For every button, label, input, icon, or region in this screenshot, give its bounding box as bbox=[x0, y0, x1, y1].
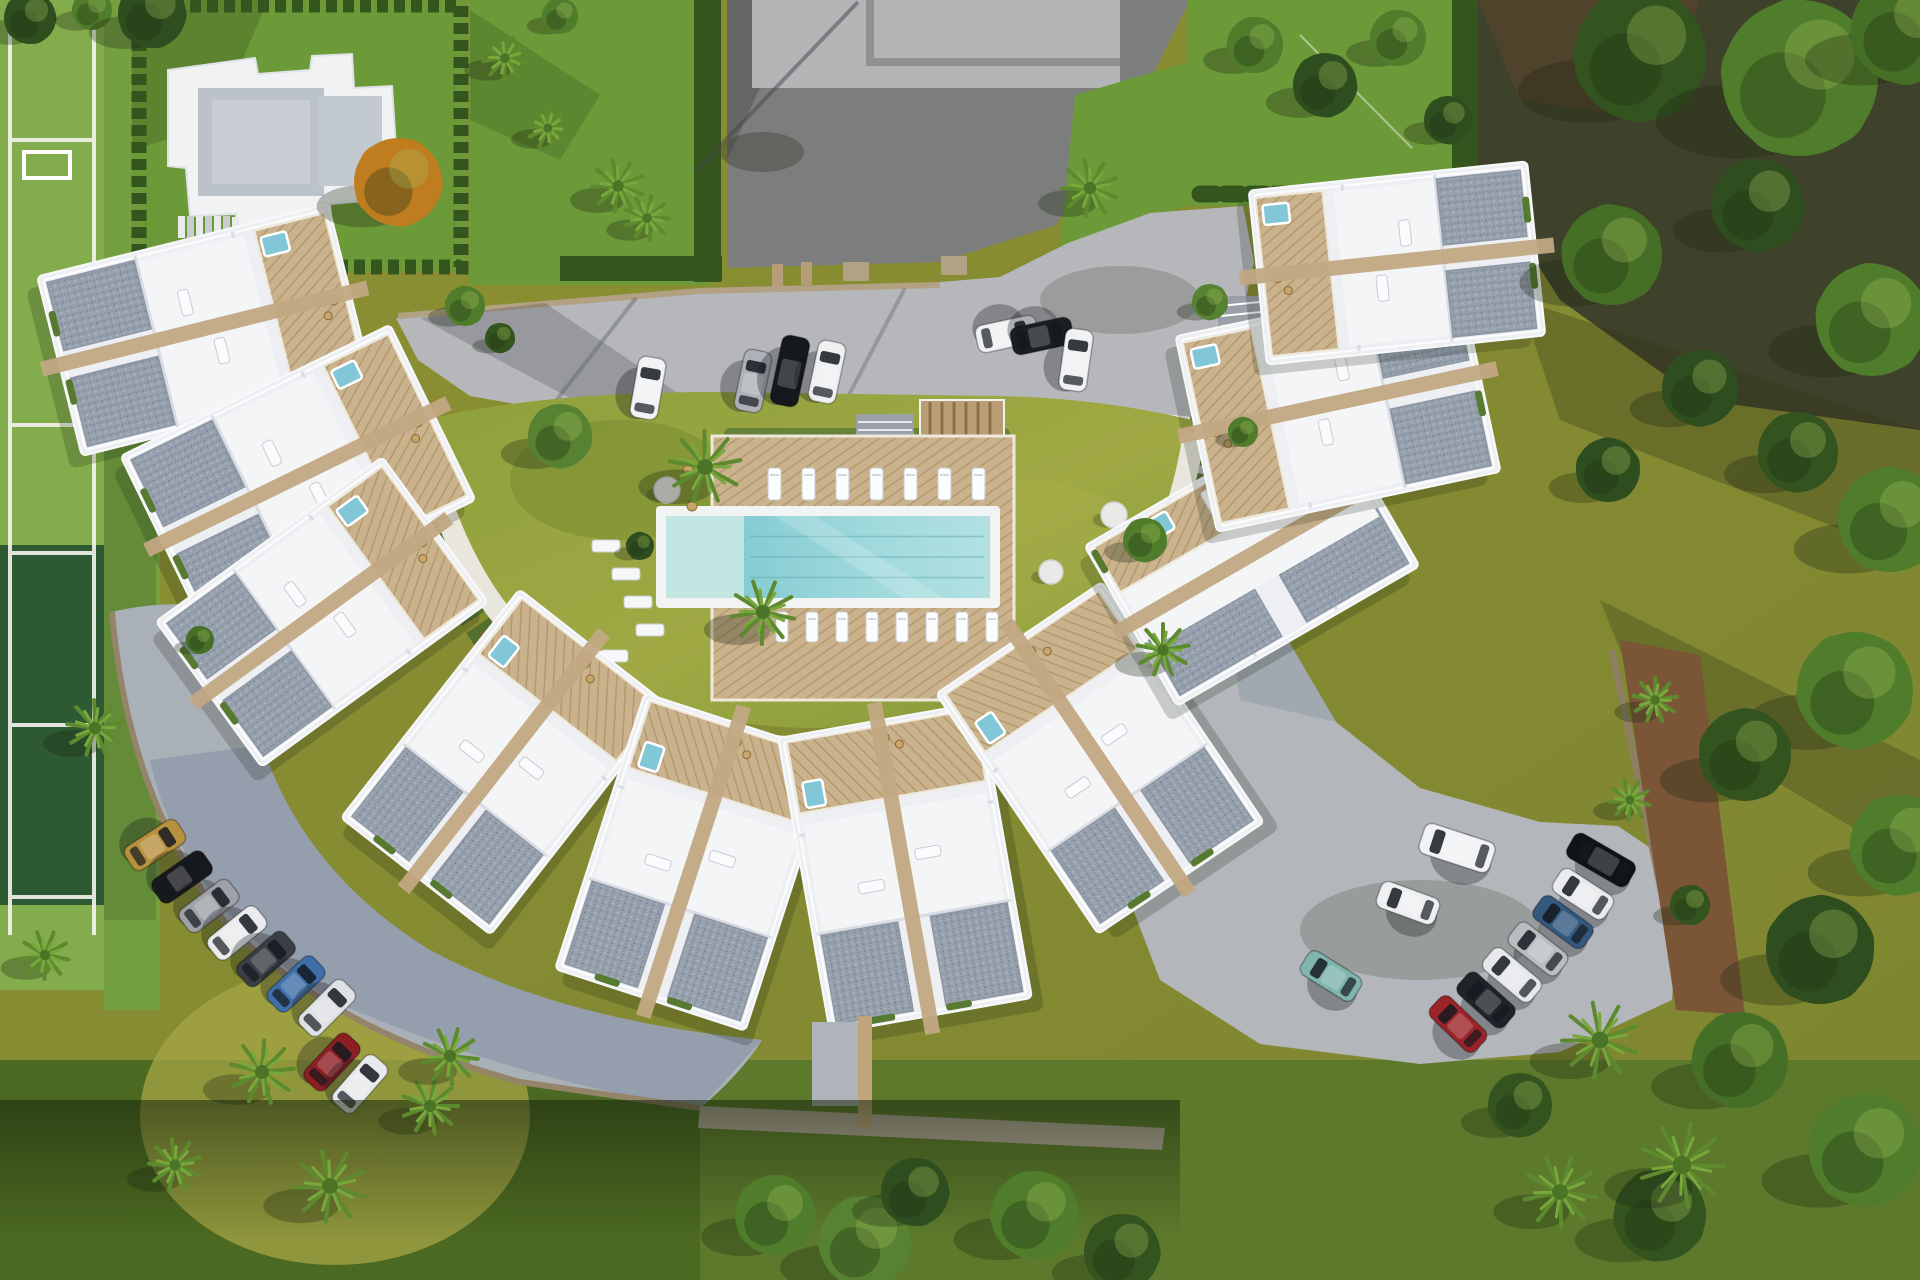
canopy-highlight bbox=[637, 536, 650, 549]
sun-lounger bbox=[836, 612, 848, 642]
lawn-lounger-mat bbox=[612, 568, 640, 580]
canopy-highlight bbox=[1514, 1081, 1543, 1110]
palm-crown bbox=[1157, 644, 1168, 655]
curb-block bbox=[941, 256, 967, 275]
palm-crown bbox=[1626, 796, 1635, 805]
canopy-highlight bbox=[1627, 6, 1686, 65]
side-hedge-horizontal bbox=[560, 256, 722, 281]
canopy-highlight bbox=[1692, 360, 1726, 394]
sun-lounger bbox=[870, 468, 883, 500]
canopy-highlight bbox=[1854, 1108, 1904, 1158]
sun-lounger bbox=[836, 468, 849, 500]
sun-lounger bbox=[956, 612, 968, 642]
sun-lounger bbox=[926, 612, 938, 642]
canopy-highlight bbox=[1749, 171, 1790, 212]
palm-crown bbox=[642, 213, 652, 223]
canopy-highlight bbox=[497, 327, 511, 341]
sun-lounger bbox=[904, 468, 917, 500]
terrace-lounger bbox=[1376, 275, 1390, 302]
sun-lounger bbox=[806, 612, 818, 642]
villa-roof-inner bbox=[212, 100, 310, 184]
terrace-lounger bbox=[1398, 219, 1412, 246]
canopy-highlight bbox=[1319, 61, 1348, 90]
building-cluster-northeast-b bbox=[1231, 159, 1565, 376]
canopy-highlight bbox=[556, 3, 572, 19]
canopy-highlight bbox=[908, 1167, 939, 1198]
aerial-render: Aerial render of crescent-shaped residen… bbox=[0, 0, 1920, 1280]
gravel-roof bbox=[1436, 170, 1526, 245]
palm-crown bbox=[169, 1159, 180, 1170]
palm-shadow-on-lot bbox=[720, 132, 804, 172]
pool-shallow-end bbox=[666, 516, 744, 598]
palm-crown bbox=[1084, 182, 1096, 194]
palm-crown bbox=[1673, 1156, 1691, 1174]
canopy-highlight bbox=[1602, 218, 1647, 263]
plunge-pool bbox=[802, 779, 826, 808]
canopy-highlight bbox=[389, 149, 429, 189]
palm-crown bbox=[612, 180, 623, 191]
canopy-highlight bbox=[1392, 17, 1417, 42]
palm-crown bbox=[697, 459, 713, 475]
aerial-render-stage: Aerial render of crescent-shaped residen… bbox=[0, 0, 1920, 1280]
palm-crown bbox=[255, 1065, 269, 1079]
concrete-pad bbox=[752, 0, 1120, 88]
canopy-highlight bbox=[1790, 422, 1826, 458]
palm-crown bbox=[1650, 695, 1660, 705]
sun-lounger bbox=[768, 468, 781, 500]
canopy-highlight bbox=[1861, 278, 1911, 328]
canopy-highlight bbox=[1602, 446, 1631, 475]
palm-crown bbox=[40, 950, 51, 961]
car-roof bbox=[636, 379, 659, 402]
car-roof bbox=[815, 363, 839, 387]
gate-pillar bbox=[801, 262, 812, 285]
canopy-highlight bbox=[1114, 1224, 1148, 1258]
gravel-roof bbox=[1446, 262, 1536, 337]
canopy-highlight bbox=[1249, 24, 1274, 49]
palm-crown bbox=[544, 124, 553, 133]
palm-crown bbox=[322, 1178, 338, 1194]
canopy-highlight bbox=[1843, 647, 1895, 699]
canopy-highlight bbox=[1809, 910, 1858, 959]
sun-lounger bbox=[896, 612, 908, 642]
palm-crown bbox=[1552, 1184, 1568, 1200]
sun-lounger bbox=[972, 468, 985, 500]
sun-lounger bbox=[938, 468, 951, 500]
palm-crown bbox=[424, 1100, 436, 1112]
lawn-lounger-mat bbox=[636, 624, 664, 636]
plunge-pool bbox=[1190, 344, 1220, 369]
canopy-highlight bbox=[1686, 890, 1704, 908]
palm-crown bbox=[756, 605, 770, 619]
car-roof bbox=[1064, 352, 1087, 375]
gate-pillar bbox=[772, 264, 783, 287]
canopy-highlight bbox=[1443, 102, 1465, 124]
gravel-roof bbox=[930, 903, 1022, 1005]
canopy-highlight bbox=[1736, 721, 1777, 762]
gravel-roof bbox=[821, 922, 913, 1024]
palm-crown bbox=[500, 53, 510, 63]
palm-crown bbox=[444, 1050, 456, 1062]
wicker-chair bbox=[1284, 286, 1293, 295]
palm-crown bbox=[1592, 1032, 1609, 1049]
canopy-highlight bbox=[554, 412, 583, 441]
canopy-highlight bbox=[1141, 524, 1161, 544]
side-hedge-vertical bbox=[694, 0, 721, 282]
stepping-stone bbox=[1039, 560, 1063, 584]
canopy-highlight bbox=[1206, 289, 1222, 305]
palm-crown bbox=[89, 722, 101, 734]
sun-lounger bbox=[986, 612, 998, 642]
lawn-lounger-mat bbox=[592, 540, 620, 552]
sun-lounger bbox=[866, 612, 878, 642]
canopy-highlight bbox=[1240, 421, 1254, 435]
lawn-lounger-mat bbox=[624, 596, 652, 608]
sun-lounger bbox=[802, 468, 815, 500]
canopy-highlight bbox=[1730, 1024, 1773, 1067]
curb-block bbox=[843, 262, 869, 281]
plunge-pool bbox=[1262, 203, 1290, 226]
car-roof bbox=[1027, 325, 1051, 349]
canopy-highlight bbox=[1026, 1182, 1066, 1222]
canopy-highlight bbox=[461, 291, 479, 309]
canopy-highlight bbox=[197, 630, 210, 643]
stair-roof bbox=[812, 1022, 864, 1106]
canopy-highlight bbox=[767, 1185, 803, 1221]
